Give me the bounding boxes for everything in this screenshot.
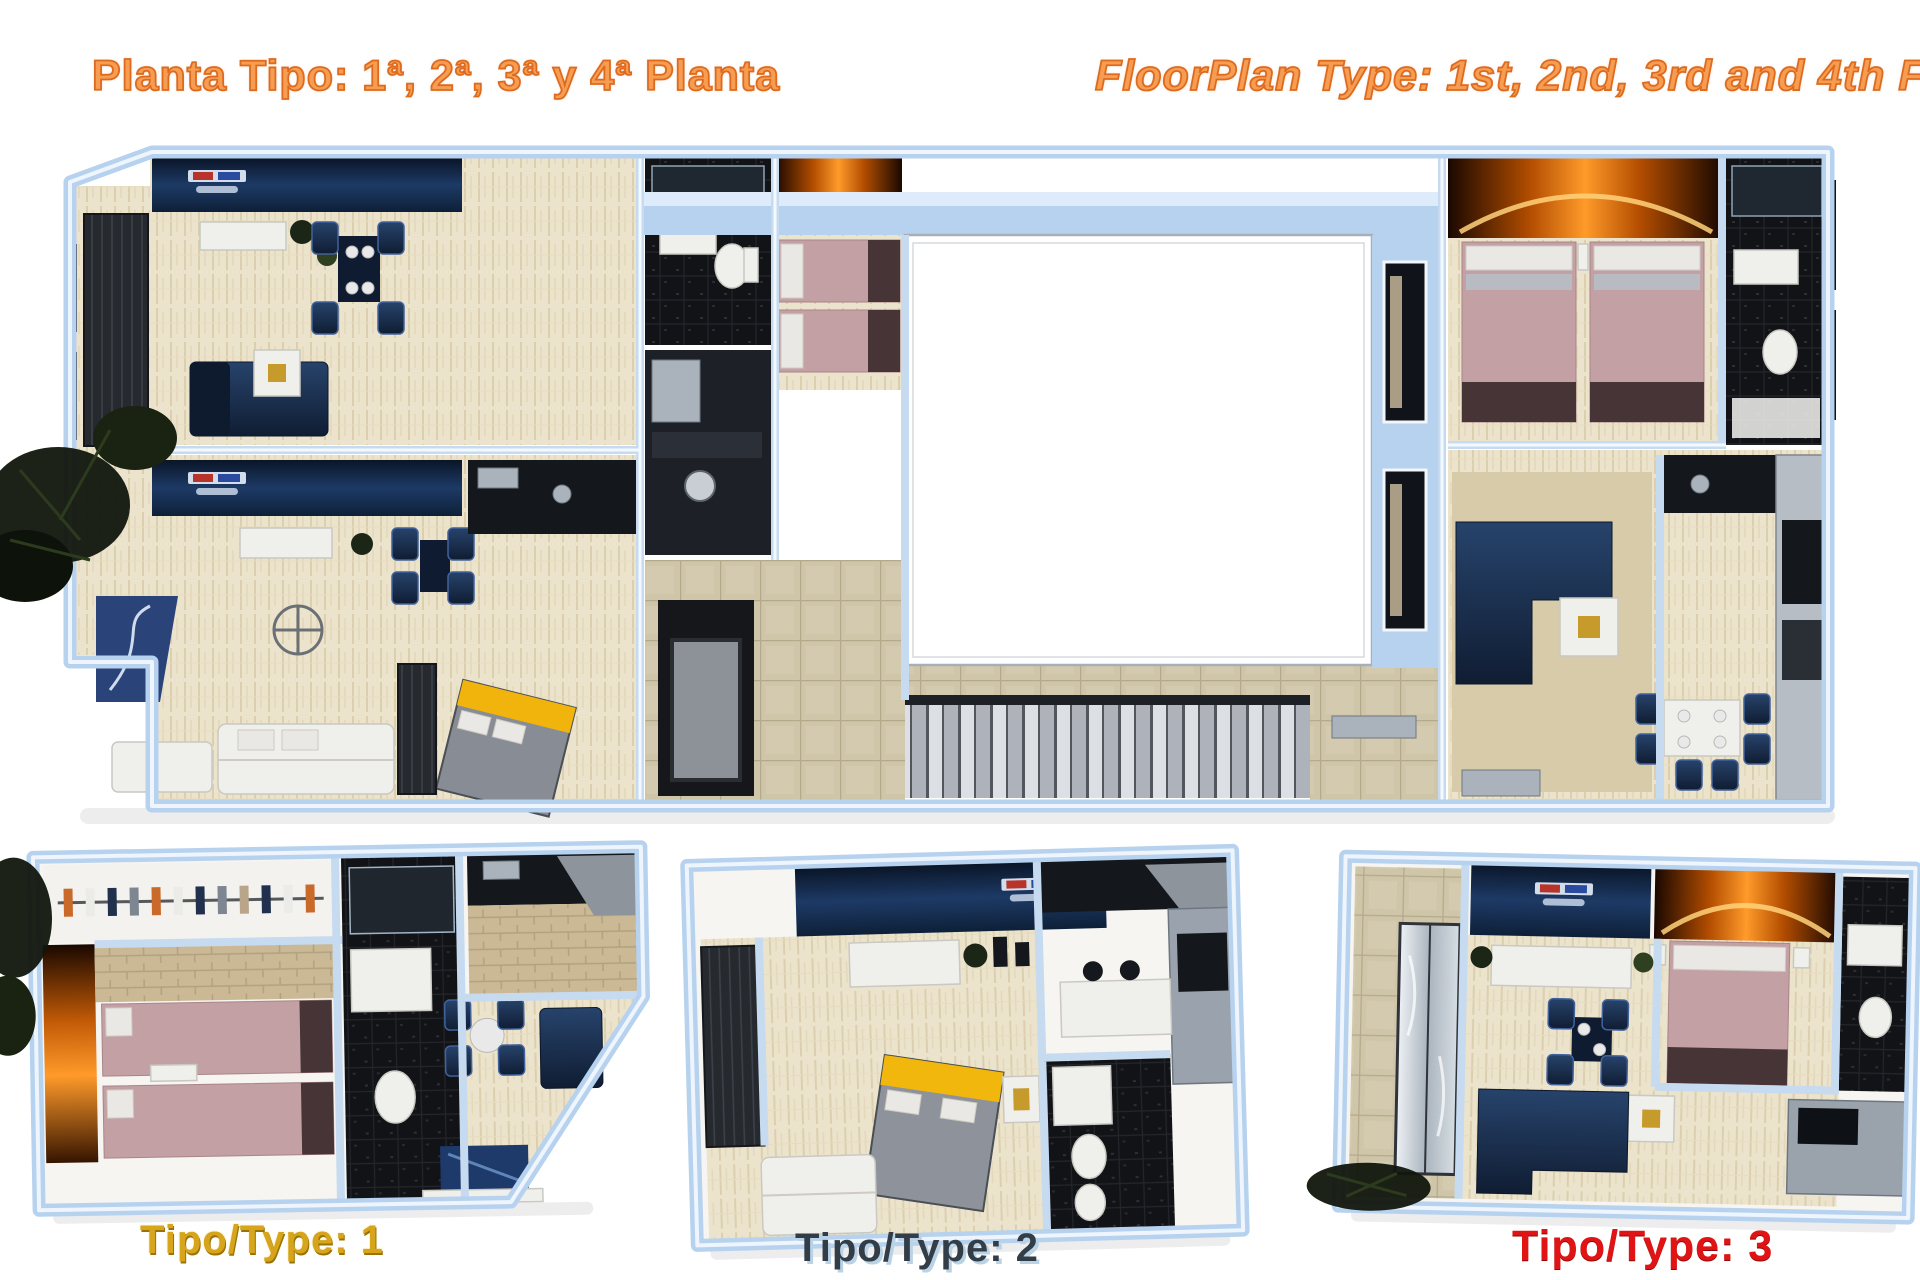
floorplan-art: [0, 0, 1920, 1280]
bench: [1462, 770, 1540, 796]
toilet: [1763, 330, 1797, 374]
bathroom: [1726, 158, 1828, 445]
wardrobe: [701, 946, 765, 1148]
mirror: [1732, 166, 1822, 216]
oven: [1177, 933, 1229, 992]
bedroom: [42, 938, 340, 1163]
brochure-page: Planta Tipo: 1ª, 2ª, 3ª y 4ª Planta Floo…: [0, 0, 1920, 1280]
decor: [1015, 942, 1030, 966]
sink-counter: [351, 948, 432, 1011]
bed: [778, 240, 900, 302]
decor: [993, 937, 1008, 967]
gold-decor: [1578, 616, 1600, 638]
wardrobe: [398, 664, 436, 794]
shower-tray: [1732, 398, 1820, 438]
unit-label-type1: Tipo/Type: 1: [140, 1218, 384, 1263]
accent-wall: [152, 158, 462, 212]
kitchen-counter: [1660, 455, 1776, 513]
sideboard: [200, 222, 286, 250]
oven-stack: [1782, 520, 1822, 604]
unit-type-2: [687, 850, 1244, 1260]
toilet: [1859, 997, 1892, 1038]
nightstand: [1578, 244, 1588, 270]
sideboard: [849, 940, 960, 987]
island: [1060, 979, 1171, 1037]
title-spanish: Planta Tipo: 1ª, 2ª, 3ª y 4ª Planta: [92, 52, 780, 101]
bathroom: [1042, 1054, 1175, 1230]
bed: [1667, 941, 1790, 1085]
elevator: [658, 600, 754, 796]
kitchen-sink: [553, 485, 571, 503]
white-sofa: [218, 724, 394, 794]
headboard-wall: [94, 938, 337, 1002]
hall-bench: [1332, 716, 1416, 738]
washer: [685, 471, 715, 501]
kitchen-sink: [1691, 475, 1709, 493]
unit-label-type3: Tipo/Type: 3: [1512, 1222, 1773, 1271]
sink: [1847, 925, 1902, 966]
sideboard: [240, 528, 332, 558]
brand-logo: [1535, 882, 1593, 906]
bed: [778, 310, 900, 372]
kitchen: [467, 851, 643, 998]
plant: [351, 533, 373, 555]
toilet: [1071, 1134, 1106, 1179]
bed: [103, 1082, 334, 1158]
main-floorplan: [0, 152, 1836, 824]
shower-tray: [1053, 1066, 1113, 1126]
mirror-wardrobe: [1395, 923, 1460, 1174]
desk-cabinet: [1787, 1100, 1907, 1196]
title-english: FloorPlan Type: 1st, 2nd, 3rd and 4th Fl…: [1095, 52, 1920, 101]
utility-kitchen: [645, 350, 772, 555]
bed: [1590, 242, 1704, 422]
accent-wall: [152, 460, 462, 516]
unit-type-3: [1306, 856, 1916, 1234]
nightstand: [151, 1065, 197, 1082]
gold-decor: [268, 364, 286, 382]
bathroom: [1839, 877, 1913, 1092]
white-sofa: [761, 1154, 877, 1235]
nightstand: [1793, 948, 1809, 968]
sink: [1734, 250, 1798, 284]
closet: [43, 860, 336, 943]
bed: [864, 1055, 1003, 1211]
unit-label-type2: Tipo/Type: 2: [795, 1226, 1039, 1271]
mirror: [349, 866, 454, 934]
courtyard-void: [905, 235, 1372, 665]
bathroom: [645, 158, 772, 345]
brand-logo: [188, 170, 246, 193]
bench: [112, 742, 212, 792]
fire-accent-wall: [42, 944, 98, 1163]
fridge: [652, 360, 700, 422]
tv: [1798, 1108, 1859, 1145]
toilet: [375, 1071, 416, 1124]
brand-logo: [188, 472, 246, 495]
unit-type-1: [0, 847, 647, 1226]
bed: [1462, 242, 1576, 422]
bed: [102, 1000, 333, 1076]
bidet: [1075, 1184, 1106, 1221]
plant: [290, 220, 314, 244]
sideboard: [1491, 945, 1632, 988]
